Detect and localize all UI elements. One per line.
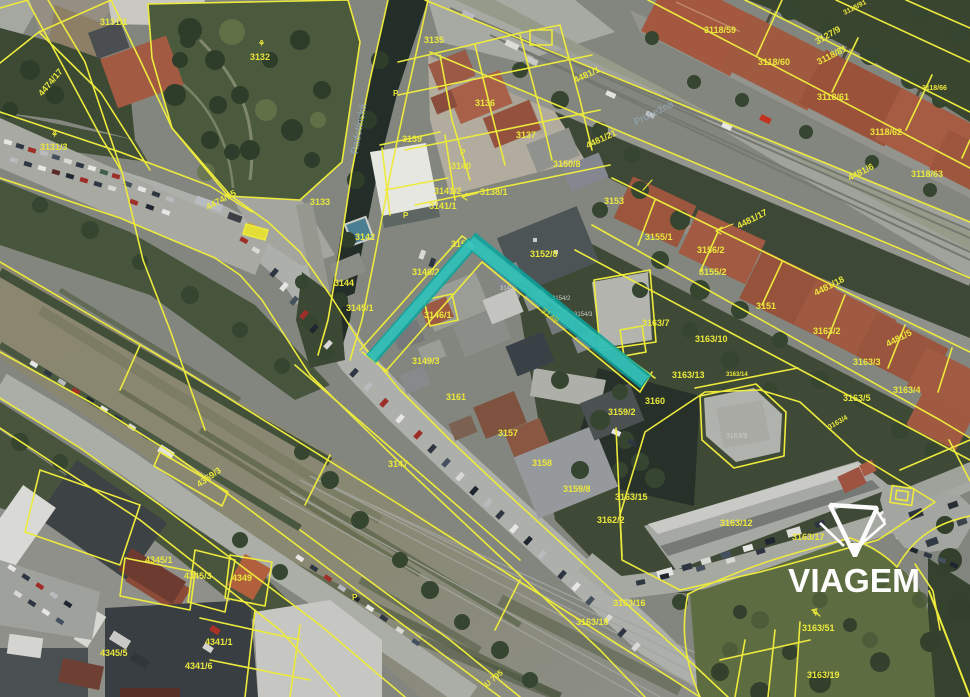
- svg-text:3155/2: 3155/2: [699, 267, 727, 277]
- svg-text:3163/3: 3163/3: [853, 357, 881, 367]
- svg-text:⚘: ⚘: [51, 130, 58, 139]
- svg-text:3163/2: 3163/2: [813, 326, 841, 336]
- svg-text:3147: 3147: [388, 459, 408, 469]
- svg-text:3131/3: 3131/3: [40, 142, 68, 152]
- svg-text:3146/1: 3146/1: [424, 310, 452, 320]
- svg-text:3149/3: 3149/3: [412, 356, 440, 366]
- svg-text:3118/61: 3118/61: [817, 92, 849, 102]
- svg-text:3137: 3137: [516, 130, 536, 140]
- svg-text:3118/59: 3118/59: [704, 25, 736, 35]
- svg-text:3163/16: 3163/16: [613, 598, 646, 608]
- svg-text:3151: 3151: [756, 301, 776, 311]
- svg-text:3142: 3142: [355, 232, 375, 242]
- svg-text:3135: 3135: [424, 35, 444, 45]
- svg-text:3160: 3160: [645, 396, 665, 406]
- svg-text:P: P: [352, 593, 358, 602]
- svg-text:3163/17: 3163/17: [792, 532, 825, 542]
- svg-text:3118/62: 3118/62: [870, 127, 902, 137]
- svg-text:3163/51: 3163/51: [802, 623, 835, 633]
- svg-text:3156/2: 3156/2: [697, 245, 725, 255]
- svg-text:3118/63: 3118/63: [911, 169, 943, 179]
- svg-text:3150/8: 3150/8: [553, 159, 581, 169]
- svg-text:P: P: [460, 148, 466, 157]
- svg-text:3139: 3139: [402, 134, 422, 144]
- svg-text:3133: 3133: [310, 197, 330, 207]
- svg-text:4345/5: 4345/5: [100, 648, 128, 658]
- svg-text:3155/1: 3155/1: [645, 232, 673, 242]
- svg-text:⚘: ⚘: [258, 39, 265, 48]
- svg-text:3158: 3158: [532, 458, 552, 468]
- svg-text:3157: 3157: [498, 428, 518, 438]
- svg-text:3118/60: 3118/60: [758, 57, 790, 67]
- svg-text:3141/1: 3141/1: [429, 201, 457, 211]
- svg-text:P: P: [403, 211, 409, 220]
- svg-text:3163/9: 3163/9: [726, 433, 748, 440]
- svg-text:3138/1: 3138/1: [480, 187, 508, 197]
- svg-text:3118/66: 3118/66: [922, 85, 947, 92]
- svg-text:3163/10: 3163/10: [695, 334, 728, 344]
- svg-text:⚘: ⚘: [812, 609, 819, 618]
- svg-text:3136: 3136: [475, 98, 495, 108]
- svg-text:3163/5: 3163/5: [843, 393, 871, 403]
- svg-text:3149: 3149: [500, 286, 514, 292]
- svg-text:3163/19: 3163/19: [807, 670, 840, 680]
- svg-text:P: P: [393, 89, 399, 98]
- svg-text:3159/8: 3159/8: [563, 484, 591, 494]
- svg-text:3163/12: 3163/12: [720, 518, 753, 528]
- svg-text:3140: 3140: [451, 161, 471, 171]
- svg-text:VIAGEM: VIAGEM: [788, 562, 920, 599]
- svg-text:3162/2: 3162/2: [597, 515, 625, 525]
- svg-text:4341/6: 4341/6: [185, 661, 213, 671]
- svg-text:3141/2: 3141/2: [434, 186, 462, 196]
- svg-text:3163/7: 3163/7: [642, 318, 670, 328]
- svg-text:3163/4: 3163/4: [893, 385, 921, 395]
- svg-text:4345/3: 4345/3: [184, 571, 212, 581]
- svg-text:3163/13: 3163/13: [672, 370, 705, 380]
- svg-text:3153: 3153: [604, 196, 624, 206]
- svg-text:3163/15: 3163/15: [615, 492, 648, 502]
- svg-text:3131/1: 3131/1: [100, 17, 128, 27]
- svg-text:3161: 3161: [446, 392, 466, 402]
- svg-text:3159/2: 3159/2: [608, 407, 636, 417]
- svg-text:3132: 3132: [250, 52, 270, 62]
- svg-text:3145/1: 3145/1: [346, 303, 374, 313]
- svg-text:4341/1: 4341/1: [205, 637, 233, 647]
- svg-text:3163/18: 3163/18: [576, 617, 609, 627]
- svg-text:4349: 4349: [232, 573, 252, 583]
- svg-text:3163/14: 3163/14: [726, 372, 748, 378]
- svg-text:3144: 3144: [334, 278, 354, 288]
- svg-text:4345/1: 4345/1: [145, 555, 173, 565]
- svg-text:3152/8: 3152/8: [530, 249, 558, 259]
